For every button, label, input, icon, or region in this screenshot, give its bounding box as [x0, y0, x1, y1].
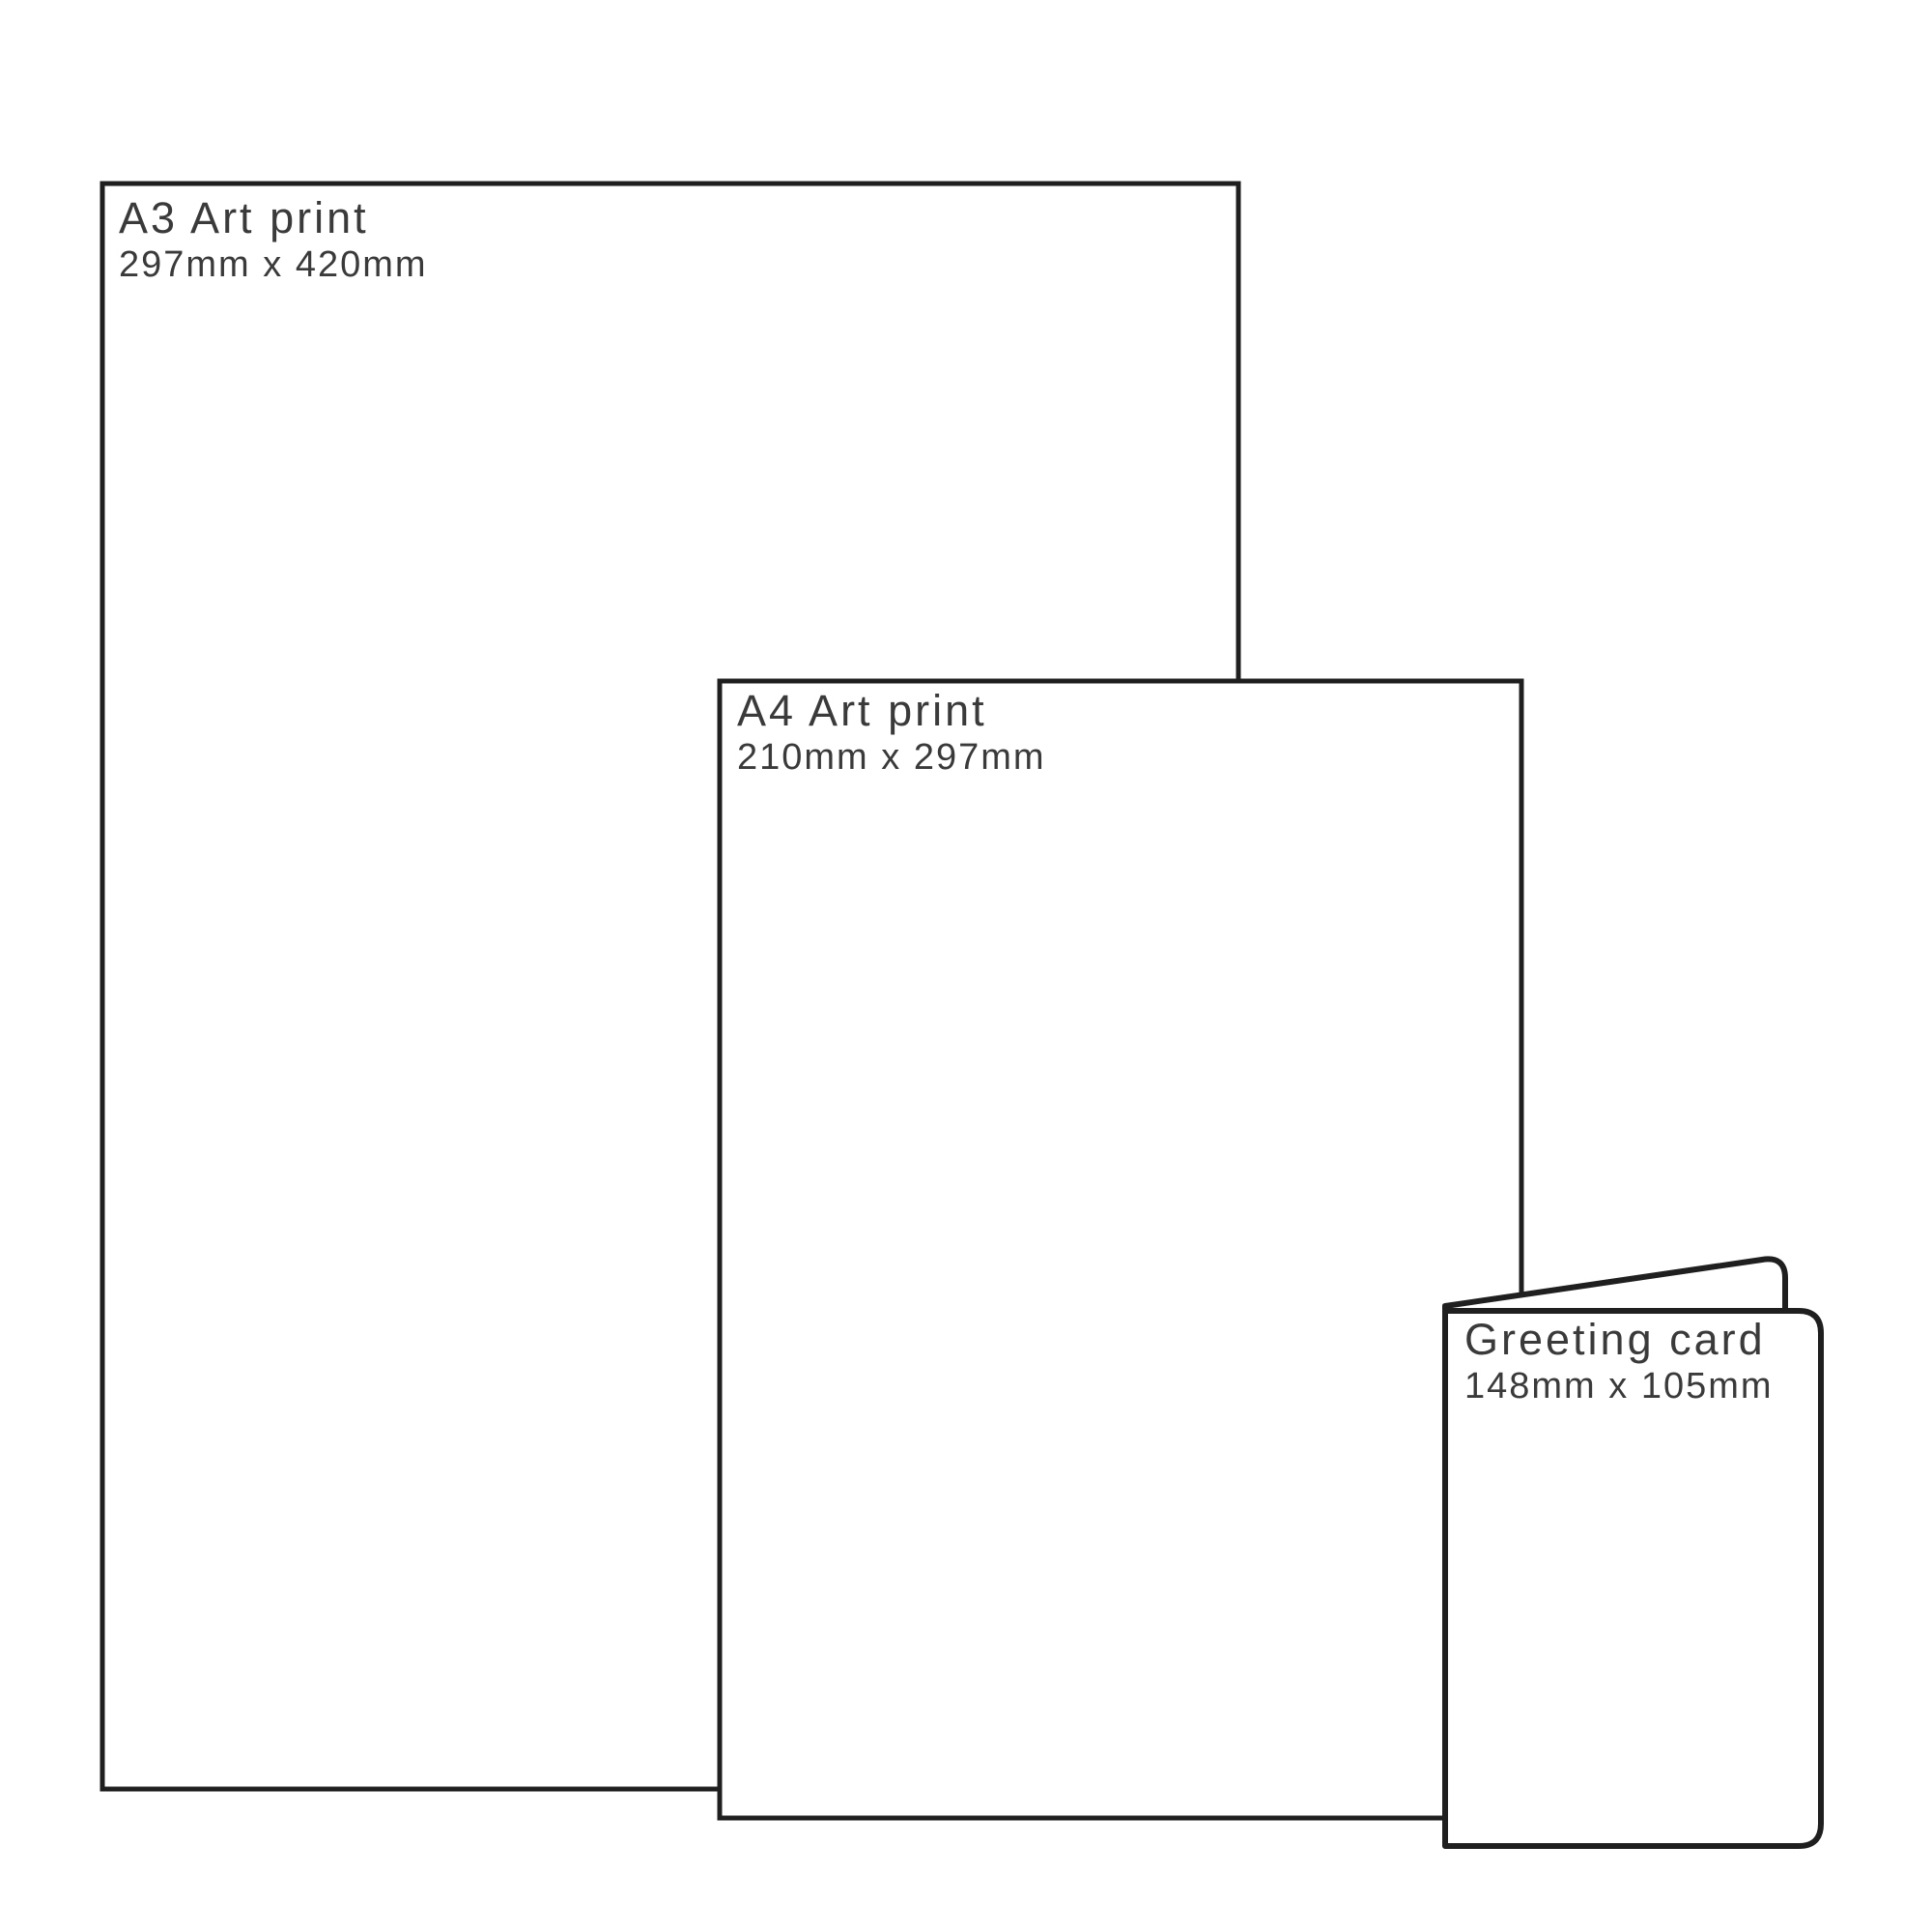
a4-label: A4 Art print 210mm x 297mm: [737, 688, 1046, 779]
a3-label: A3 Art print 297mm x 420mm: [119, 195, 428, 286]
diagram-canvas: [0, 0, 1932, 1932]
a3-label-title: A3 Art print: [119, 195, 428, 241]
a3-label-dimensions: 297mm x 420mm: [119, 243, 428, 286]
a4-label-dimensions: 210mm x 297mm: [737, 736, 1046, 779]
greeting-card-label: Greeting card 148mm x 105mm: [1464, 1317, 1774, 1407]
print-size-comparison-diagram: A3 Art print 297mm x 420mm A4 Art print …: [0, 0, 1932, 1932]
a4-sheet-outline: [720, 681, 1521, 1818]
greeting-card-label-dimensions: 148mm x 105mm: [1464, 1365, 1774, 1407]
a4-label-title: A4 Art print: [737, 688, 1046, 734]
greeting-card-label-title: Greeting card: [1464, 1317, 1774, 1363]
